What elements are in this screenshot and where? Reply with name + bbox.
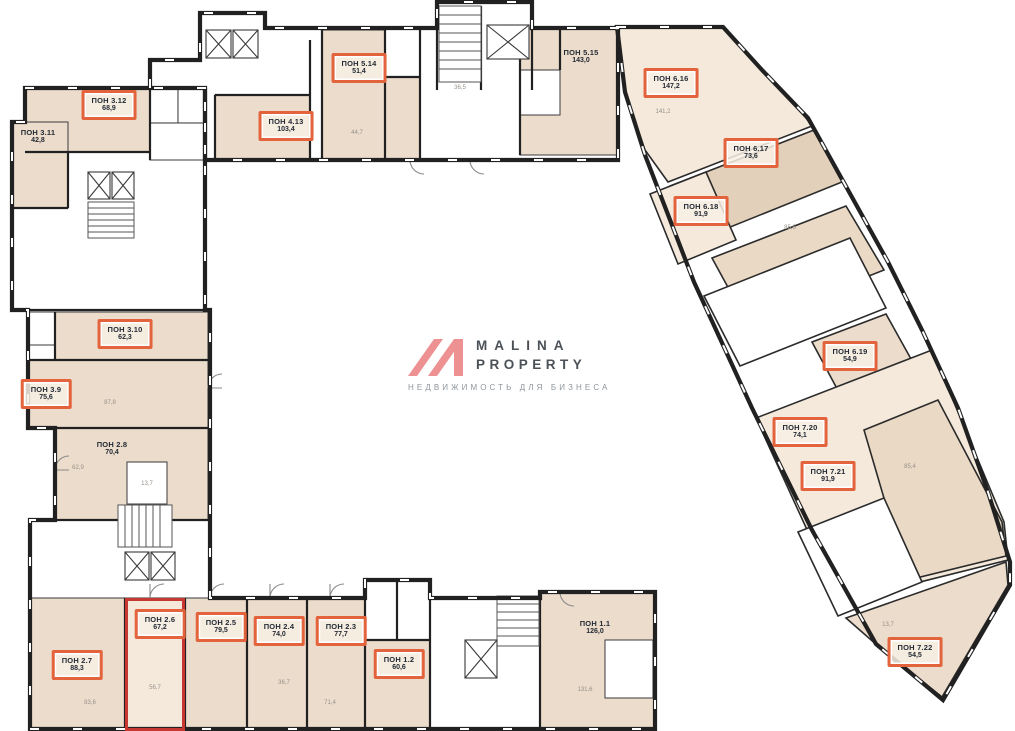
unit-area: 147,2 — [654, 83, 689, 92]
room-area-annotation: 36,5 — [454, 85, 466, 91]
unit-area: 88,3 — [62, 665, 93, 674]
unit-area: 42,8 — [21, 137, 56, 146]
unit-label-пон-6.18[interactable]: ПОН 6.1891,9 — [674, 196, 729, 226]
unit-area: 126,0 — [580, 628, 611, 637]
room-area-annotation: 13,7 — [882, 622, 894, 628]
unit-label-пон-6.19[interactable]: ПОН 6.1954,9 — [823, 341, 878, 371]
unit-area: 77,7 — [326, 631, 357, 640]
unit-label-пон-7.20[interactable]: ПОН 7.2074,1 — [773, 417, 828, 447]
unit-name: ПОН 6.19 — [833, 347, 868, 356]
unit-label-пон-3.11: ПОН 3.1142,8 — [21, 128, 56, 146]
room-area-annotation: 83,6 — [84, 700, 96, 706]
unit-area: 67,2 — [145, 624, 176, 633]
unit-name: ПОН 3.12 — [92, 96, 127, 105]
room-area-annotation: 71,4 — [324, 700, 336, 706]
unit-area: 70,4 — [97, 449, 128, 458]
unit-label-пон-7.21[interactable]: ПОН 7.2191,9 — [801, 461, 856, 491]
unit-area: 91,9 — [811, 476, 846, 485]
unit-area: 74,0 — [264, 631, 295, 640]
unit-label-пон-6.16[interactable]: ПОН 6.16147,2 — [644, 68, 699, 98]
unit-label-пон-7.22[interactable]: ПОН 7.2254,5 — [888, 637, 943, 667]
brand-tagline: НЕДВИЖИМОСТЬ ДЛЯ БИЗНЕСА — [408, 383, 618, 392]
watermark: MALINA PROPERTY НЕДВИЖИМОСТЬ ДЛЯ БИЗНЕСА — [408, 334, 618, 392]
room-area-annotation: 13,7 — [141, 481, 153, 487]
unit-area: 103,4 — [269, 126, 304, 135]
floor-plan-page: ПОН 3.1268,9ПОН 3.1142,8ПОН 4.13103,4ПОН… — [0, 0, 1015, 731]
unit-label-пон-3.12[interactable]: ПОН 3.1268,9 — [82, 90, 137, 120]
unit-label-пон-4.13[interactable]: ПОН 4.13103,4 — [259, 111, 314, 141]
unit-name: ПОН 7.21 — [811, 467, 846, 476]
unit-name: ПОН 3.10 — [108, 325, 143, 334]
unit-label-пон-2.3[interactable]: ПОН 2.377,7 — [316, 616, 367, 646]
unit-area: 51,4 — [342, 68, 377, 77]
unit-name: ПОН 2.5 — [206, 618, 237, 627]
unit-area: 143,0 — [564, 57, 599, 66]
unit-name: ПОН 3.11 — [21, 128, 56, 137]
room-area-annotation: 62,9 — [72, 465, 84, 471]
room-area-annotation: 131,6 — [577, 687, 592, 693]
unit-area: 68,9 — [92, 105, 127, 114]
unit-area: 74,1 — [783, 432, 818, 441]
unit-name: ПОН 7.22 — [898, 643, 933, 652]
unit-area: 91,9 — [684, 211, 719, 220]
unit-label-пон-1.1: ПОН 1.1126,0 — [580, 619, 611, 637]
brand-line2: PROPERTY — [476, 357, 586, 372]
unit-label-пон-3.9[interactable]: ПОН 3.975,6 — [21, 379, 72, 409]
unit-name: ПОН 2.8 — [97, 440, 128, 449]
room-area-annotation: 141,2 — [655, 109, 670, 115]
unit-name: ПОН 1.1 — [580, 619, 611, 628]
unit-name: ПОН 4.13 — [269, 117, 304, 126]
unit-area: 54,5 — [898, 652, 933, 661]
room-area-annotation: 87,8 — [104, 400, 116, 406]
unit-area: 54,9 — [833, 356, 868, 365]
unit-area: 60,6 — [384, 664, 415, 673]
unit-name: ПОН 2.3 — [326, 622, 357, 631]
unit-name: ПОН 7.20 — [783, 423, 818, 432]
unit-name: ПОН 6.16 — [654, 74, 689, 83]
unit-area: 62,3 — [108, 334, 143, 343]
room-area-annotation: 36,7 — [278, 680, 290, 686]
unit-name: ПОН 2.6 — [145, 615, 176, 624]
brand-line1: MALINA — [476, 338, 586, 353]
unit-label-пон-2.7[interactable]: ПОН 2.788,3 — [52, 650, 103, 680]
unit-area: 79,5 — [206, 627, 237, 636]
room-area-annotation: 44,7 — [351, 130, 363, 136]
room-area-annotation: 85,6 — [784, 225, 796, 231]
unit-name: ПОН 5.14 — [342, 59, 377, 68]
unit-label-пон-5.14[interactable]: ПОН 5.1451,4 — [332, 53, 387, 83]
unit-name: ПОН 6.18 — [684, 202, 719, 211]
room-area-annotation: 85,4 — [904, 464, 916, 470]
unit-name: ПОН 3.9 — [31, 385, 62, 394]
unit-label-пон-3.10[interactable]: ПОН 3.1062,3 — [98, 319, 153, 349]
unit-name: ПОН 5.15 — [564, 48, 599, 57]
unit-label-пон-2.4[interactable]: ПОН 2.474,0 — [254, 616, 305, 646]
unit-label-пон-2.5[interactable]: ПОН 2.579,5 — [196, 612, 247, 642]
unit-name: ПОН 1.2 — [384, 655, 415, 664]
unit-area: 75,6 — [31, 394, 62, 403]
unit-name: ПОН 6.17 — [734, 144, 769, 153]
unit-name: ПОН 2.7 — [62, 656, 93, 665]
unit-label-пон-1.2[interactable]: ПОН 1.260,6 — [374, 649, 425, 679]
unit-label-пон-2.8: ПОН 2.870,4 — [97, 440, 128, 458]
unit-name: ПОН 2.4 — [264, 622, 295, 631]
malina-logo-icon — [408, 334, 466, 376]
unit-area: 73,6 — [734, 153, 769, 162]
unit-label-пон-6.17[interactable]: ПОН 6.1773,6 — [724, 138, 779, 168]
unit-label-пон-5.15: ПОН 5.15143,0 — [564, 48, 599, 66]
unit-label-пон-2.6[interactable]: ПОН 2.667,2 — [135, 609, 186, 639]
room-area-annotation: 56,7 — [149, 685, 161, 691]
